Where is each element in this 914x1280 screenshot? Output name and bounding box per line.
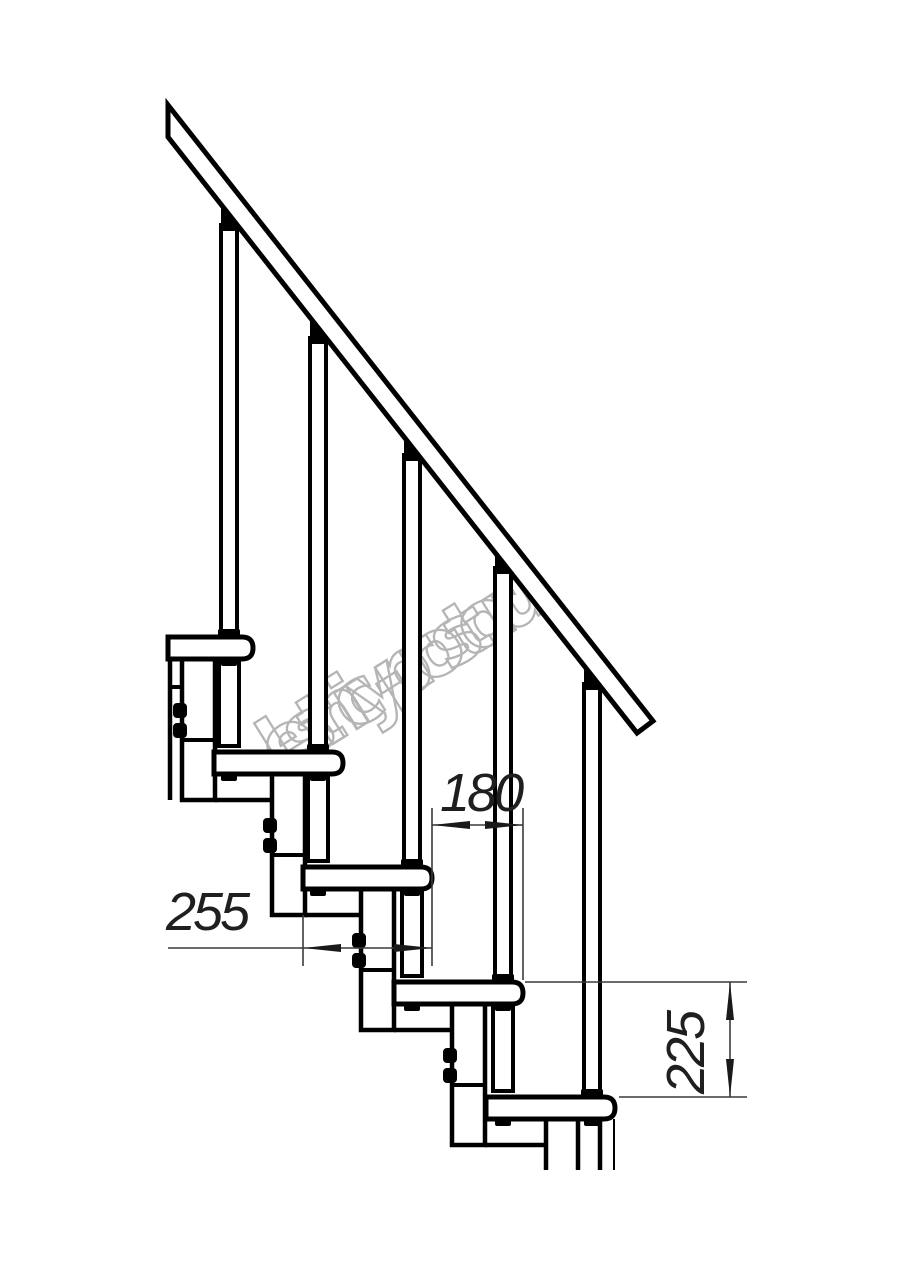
arrow-down-icon [726,1059,734,1097]
mount-cap-icon [307,744,329,752]
mount-nut-icon [221,775,237,781]
baluster-3 [404,455,420,867]
mount-nut-icon [495,1120,511,1126]
dimension-value-225: 225 [656,1009,716,1095]
dimension-value-255: 255 [165,882,251,942]
tread-4 [394,982,523,1004]
mount-nut-icon [310,775,326,781]
mount-nut-icon [404,1005,420,1011]
bolt-icon [175,705,185,716]
bolt-icon [445,1050,455,1061]
bolt-icon [265,840,275,851]
step-rod-2 [308,774,328,861]
bolt-icon [265,820,275,831]
tread-1 [168,637,253,659]
mount-cap-icon [581,1089,603,1097]
baluster-2 [310,338,326,752]
bolt-icon [175,725,185,736]
mount-nut-icon [310,890,326,896]
arrow-left-icon [303,944,341,952]
staircase-structure [168,105,653,1170]
baluster-1 [221,225,237,637]
mount-cap-icon [401,859,423,867]
step-rod-4 [493,1004,513,1091]
step-rod-1 [219,659,239,746]
mount-nut-icon [404,890,420,896]
bolt-icon [354,935,364,946]
step-rod-3 [402,889,422,976]
arrow-up-icon [726,982,734,1020]
mount-cap-icon [492,974,514,982]
bolt-icon [445,1070,455,1081]
dimension-value-180: 180 [440,763,524,823]
staircase-technical-drawing: lestnicy-prosto.ru [0,0,914,1280]
mount-nut-icon [495,1005,511,1011]
tread-2 [214,752,343,774]
support-module-5 [546,1119,614,1170]
mount-nut-icon [221,660,237,666]
mount-cap-icon [218,629,240,637]
tread-3 [303,867,432,889]
drawing-canvas: lestnicy-prosto.ru [0,0,914,1280]
bolt-icon [354,955,364,966]
mount-nut-icon [584,1120,600,1126]
tread-5 [486,1097,615,1119]
baluster-5 [584,684,600,1097]
